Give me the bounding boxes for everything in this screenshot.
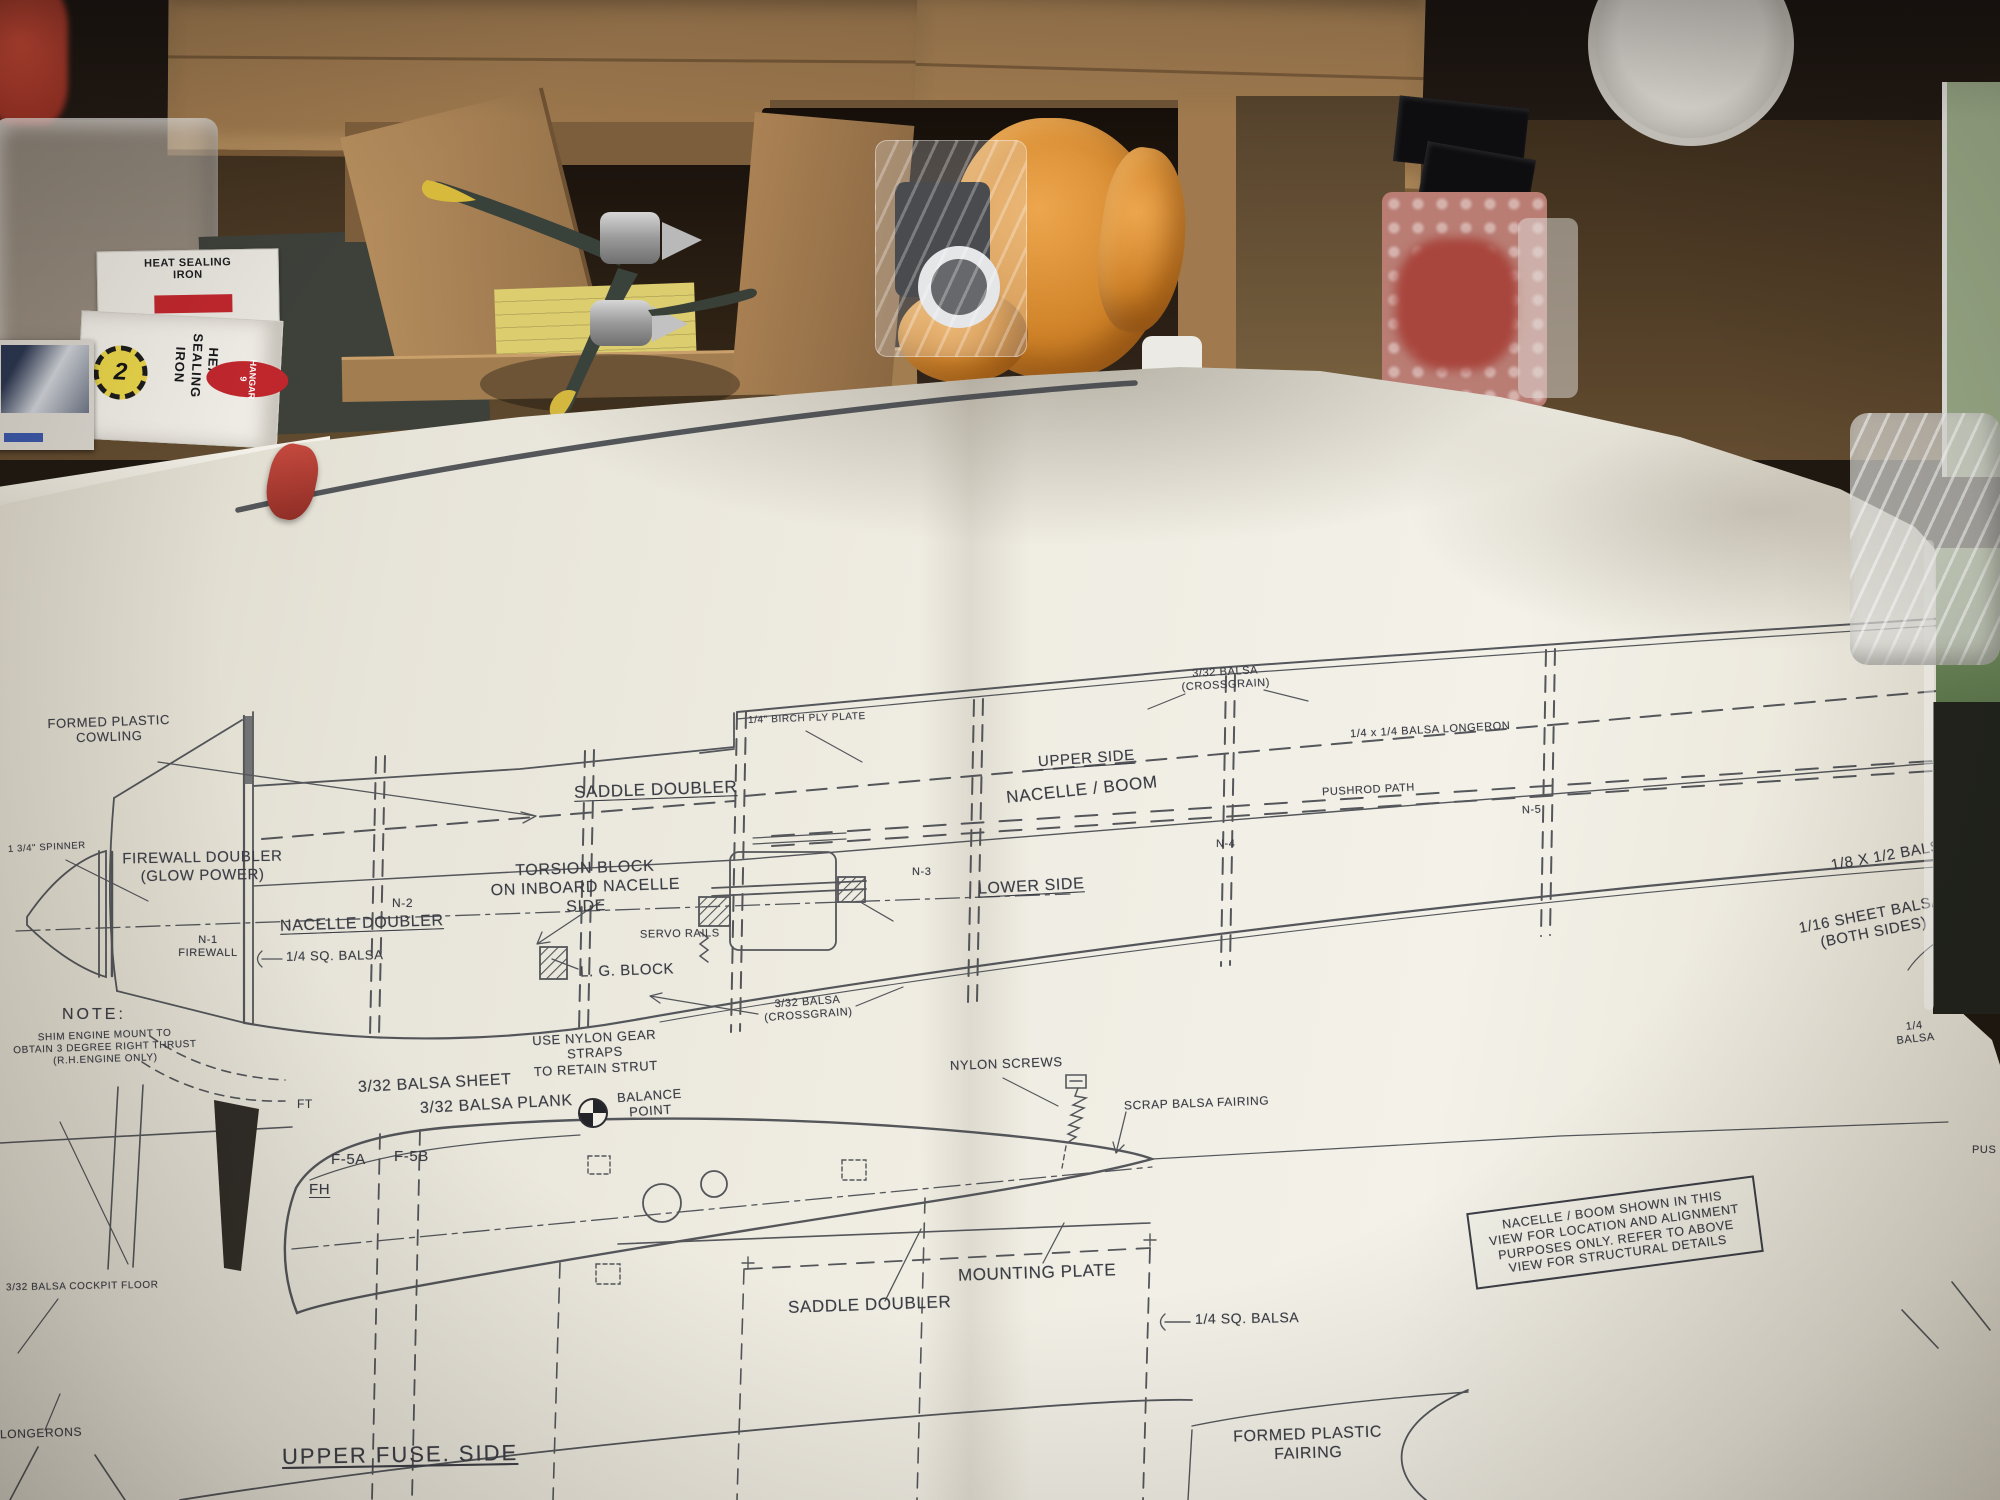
label-note-title: NOTE: — [62, 1006, 126, 1025]
label-n1-firewall: N-1 FIREWALL — [178, 934, 238, 960]
label-formed-plastic-cowling: FORMED PLASTIC COWLING — [44, 712, 175, 747]
label-gear-straps: USE NYLON GEAR STRAPS TO RETAIN STRUT — [504, 1025, 686, 1080]
label-lg-block: L. G. BLOCK — [580, 960, 675, 981]
label-f5b: F-5B — [394, 1148, 429, 1166]
label-quarter-balsa-right: 1/4 BALSA — [1889, 1017, 1941, 1048]
label-n5: N-5 — [1522, 803, 1542, 817]
label-ft: FT — [297, 1097, 313, 1111]
label-n3: N-3 — [912, 866, 932, 879]
balance-point-symbol — [578, 1098, 608, 1128]
label-torsion-block: TORSION BLOCK ON INBOARD NACELLE SIDE — [487, 857, 684, 920]
label-quarter-sq-balsa-upper: 1/4 SQ. BALSA — [286, 947, 384, 964]
label-crossgrain-top: 3/32 BALSA (CROSSGRAIN) — [1177, 664, 1273, 695]
label-longerons: LONGERONS — [0, 1425, 82, 1442]
label-balance-point: BALANCE POINT — [609, 1085, 691, 1121]
label-pushrod-partial: PUS — [1972, 1144, 1996, 1157]
label-quarter-sq-balsa-lower: 1/4 SQ. BALSA — [1195, 1309, 1300, 1327]
label-firewall-doubler: FIREWALL DOUBLER (GLOW POWER) — [120, 848, 286, 886]
label-n4: N-4 — [1216, 838, 1236, 851]
label-n2: N-2 — [392, 896, 413, 910]
label-fh: FH — [309, 1181, 330, 1199]
label-upper-fuse-side: UPPER FUSE. SIDE — [282, 1440, 519, 1470]
workbench-photo: HEAT SEALING IRON 2 HEAT SEALING IRON HA… — [0, 0, 2000, 1500]
label-servo-rails: SERVO RAILS — [640, 927, 720, 941]
label-formed-plastic-fairing: FORMED PLASTIC FAIRING — [1227, 1423, 1388, 1466]
table-shadow-sliver — [1933, 702, 2000, 1014]
label-note-body: SHIM ENGINE MOUNT TO OBTAIN 3 DEGREE RIG… — [9, 1027, 200, 1069]
label-f5a: F-5A — [331, 1151, 366, 1169]
clear-bag-corner — [1850, 413, 2000, 665]
